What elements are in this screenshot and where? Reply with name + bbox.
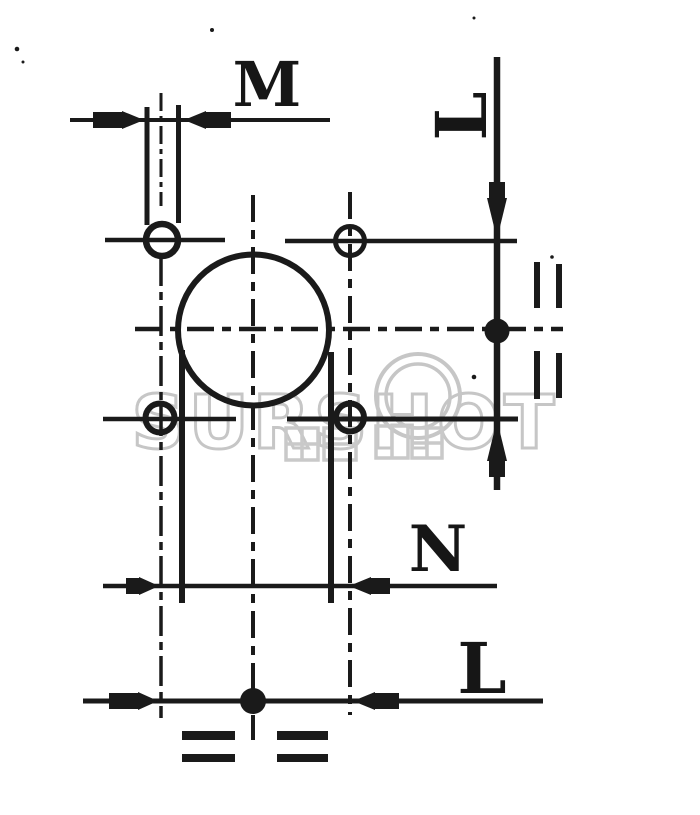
label-dim-m: M: [233, 48, 302, 121]
slot-feature: [147, 93, 179, 225]
equal-mark-bar: [182, 731, 235, 740]
equal-mark-bar: [277, 731, 328, 740]
technical-drawing-canvas: SURSHOT: [0, 0, 700, 815]
label-dim-l-bottom: L: [457, 627, 506, 710]
dim-l-bottom-node-dot: [240, 688, 266, 714]
dim-m-arrow-left: [93, 111, 144, 129]
dim-l-bottom-arrow-left: [109, 692, 158, 710]
equal-mark-bar: [277, 754, 328, 762]
label-dim-l-right: L: [420, 91, 503, 140]
dim-l-right-node-dot: [485, 319, 510, 344]
equal-mark-bar: [556, 353, 562, 398]
equal-mark-bar: [534, 351, 540, 399]
equal-mark-bar: [534, 262, 540, 308]
dim-m-arrow-right: [184, 111, 231, 129]
dim-l-right-arrow-down: [487, 182, 507, 239]
label-dim-n: N: [409, 512, 468, 587]
dim-n-arrow-right: [349, 577, 390, 595]
dim-n-arrow-left: [126, 577, 159, 595]
drawing-page: SURSHOT: [0, 0, 700, 815]
dim-l-bottom-arrow-right: [353, 692, 399, 710]
equal-mark-bar: [556, 264, 562, 308]
equal-mark-bar: [182, 754, 235, 762]
